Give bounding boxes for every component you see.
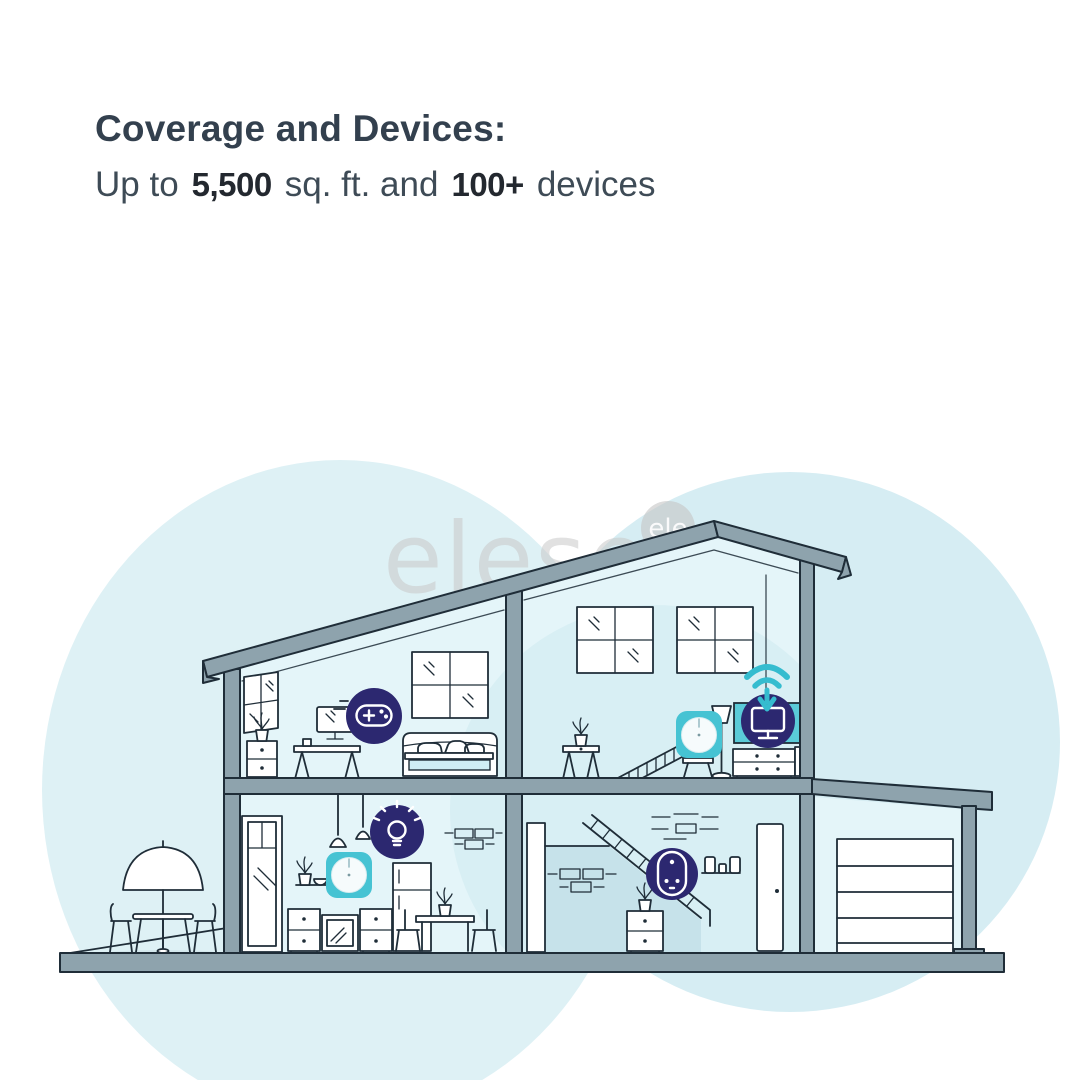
subtitle-middle: sq. ft. and: [285, 165, 439, 205]
garage-wall: [962, 806, 976, 953]
living-window-right: [677, 607, 753, 673]
entry-door: [757, 824, 783, 951]
ground-slab: [60, 953, 1004, 972]
garage: [837, 839, 953, 957]
middle-wall: [506, 584, 522, 953]
garage-door: [837, 839, 953, 957]
subtitle-prefix: Up to: [95, 165, 179, 205]
second-floor-slab: [224, 778, 814, 794]
right-wall: [800, 557, 814, 953]
devices-value: 100+: [451, 166, 523, 204]
tv-dresser: [733, 747, 803, 780]
kitchen-cabinets: [288, 909, 392, 954]
bedroom-nightstand: [247, 741, 277, 780]
badge-circle: [370, 805, 424, 859]
left-wall: [224, 669, 240, 953]
mesh-router-unit: [326, 852, 372, 898]
foyer-wall-panel: [527, 823, 545, 952]
bedroom-window: [412, 652, 488, 718]
subtitle-suffix: devices: [537, 165, 656, 205]
living-window-left: [577, 607, 653, 673]
bed: [403, 733, 497, 776]
headline-subtitle: Up to 5,500 sq. ft. and 100+ devices: [95, 165, 655, 205]
mirror-cabinet: [242, 816, 282, 952]
foyer-nightstand: [627, 911, 663, 954]
coverage-value: 5,500: [192, 166, 272, 204]
marketing-image: Coverage and Devices: Up to 5,500 sq. ft…: [0, 0, 1080, 1080]
headline-title: Coverage and Devices:: [95, 108, 655, 150]
badge-circle: [646, 848, 698, 900]
mesh-router-unit: [676, 711, 722, 758]
smart-plug-badge: [646, 848, 698, 900]
headline: Coverage and Devices: Up to 5,500 sq. ft…: [95, 108, 655, 205]
